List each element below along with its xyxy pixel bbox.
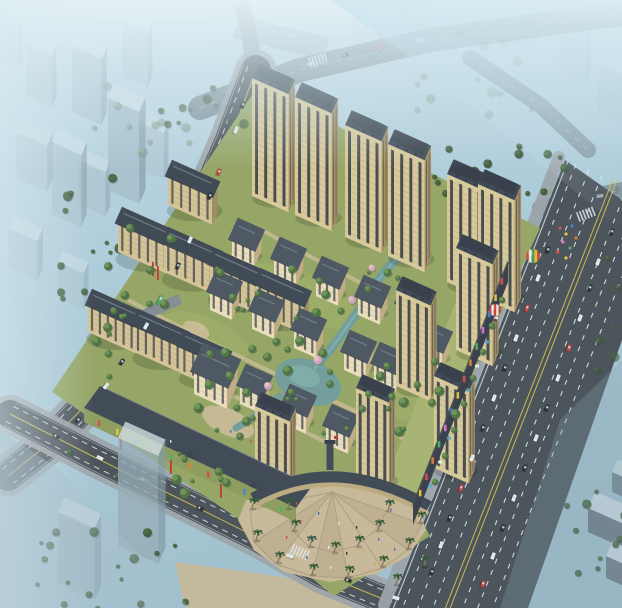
- aerial-rendering: [0, 0, 622, 608]
- mist-overlays: [0, 0, 622, 608]
- rendering-canvas: [0, 0, 622, 608]
- global-tint: [0, 0, 622, 608]
